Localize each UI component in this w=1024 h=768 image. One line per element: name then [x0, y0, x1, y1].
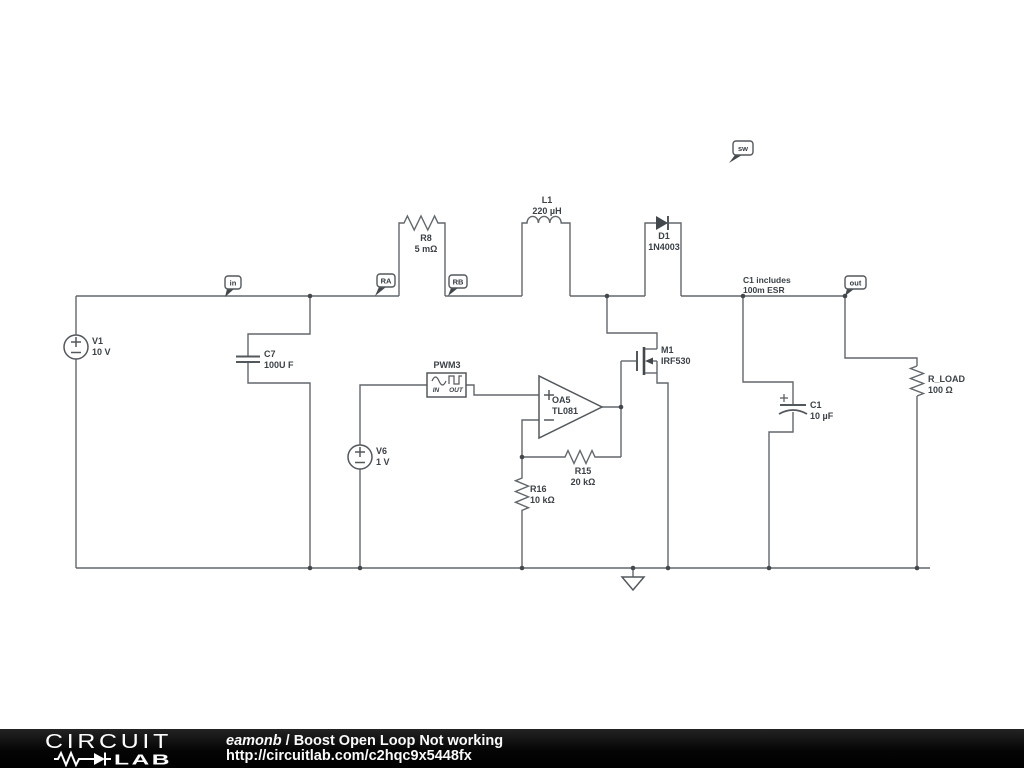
r8-value: 5 mΩ	[415, 244, 438, 254]
component-r8: R8 5 mΩ	[399, 216, 445, 296]
wire-c1-bottom	[769, 412, 793, 568]
component-v6: V6 1 V	[348, 445, 390, 469]
circuit-title: Boost Open Loop Not working	[294, 733, 503, 749]
component-d1: D1 1N4003	[645, 216, 681, 296]
title-separator: /	[286, 733, 290, 749]
r-load-name: R_LOAD	[928, 374, 966, 384]
wire-pwm-to-opamp	[466, 385, 539, 395]
junction-dot	[915, 566, 920, 571]
net-flag-out: out	[845, 276, 866, 296]
wire-c7-bottom	[248, 362, 310, 568]
flag-label: sw	[738, 144, 748, 153]
r-load-value: 100 Ω	[928, 385, 953, 395]
wire-v6-top	[360, 385, 427, 445]
junction-dot	[666, 566, 671, 571]
logo-diode-bar	[105, 752, 111, 765]
circuitlab-logo[interactable]: CIRCUIT LAB	[38, 731, 188, 767]
plus-mark	[780, 394, 788, 402]
wire-c1-top	[743, 296, 793, 405]
c1-name: C1	[810, 400, 822, 410]
logo-circuit-text: CIRCUIT	[45, 731, 172, 753]
mosfet-arrow-icon	[645, 358, 653, 365]
v1-name: V1	[92, 336, 103, 346]
junction-dot	[767, 566, 772, 571]
net-flag-sw: sw	[729, 141, 753, 163]
c7-name: C7	[264, 349, 276, 359]
capacitor-icon	[236, 357, 260, 363]
junction-dots	[308, 294, 920, 571]
component-oa5: OA5 TL081	[539, 376, 602, 438]
net-flags: in RA RB sw out	[225, 141, 866, 297]
flag-tail	[729, 155, 742, 163]
junction-dot	[605, 294, 610, 299]
component-pwm3: IN OUT PWM3	[427, 360, 466, 397]
v6-value: 1 V	[376, 457, 390, 467]
component-l1: L1 220 µH	[522, 195, 570, 296]
oa5-value: TL081	[552, 406, 578, 416]
resistor-icon	[399, 216, 445, 296]
component-v1: V1 10 V	[64, 335, 111, 359]
d1-name: D1	[658, 231, 670, 241]
net-flag-in: in	[225, 276, 241, 297]
component-c1: C1 10 µF	[779, 394, 834, 421]
wires	[76, 296, 930, 568]
junction-dot	[631, 566, 636, 571]
junction-dot	[358, 566, 363, 571]
junction-dot	[843, 294, 848, 299]
logo-resistor-icon	[54, 753, 94, 765]
junction-dot	[308, 294, 313, 299]
ground-symbol	[622, 568, 644, 590]
pwm3-out-label: OUT	[449, 387, 464, 394]
component-c7: C7 100U F	[236, 349, 294, 370]
l1-name: L1	[542, 195, 553, 205]
d1-value: 1N4003	[648, 242, 680, 252]
c1-note-line1: C1 includes	[743, 275, 791, 285]
c1-note-line2: 100m ESR	[743, 285, 785, 295]
resistor-icon	[522, 451, 621, 464]
flag-label: RB	[453, 278, 464, 287]
footer-bar: CIRCUIT LAB eamonb / Boost Open Loop Not…	[0, 729, 1024, 768]
wire-source	[657, 361, 668, 568]
l1-value: 220 µH	[532, 206, 561, 216]
oa5-name: OA5	[552, 395, 571, 405]
r8-name: R8	[420, 233, 432, 243]
inductor-icon	[522, 216, 570, 296]
wire-drain	[607, 296, 657, 349]
flag-label: out	[850, 279, 862, 288]
component-r-load: R_LOAD 100 Ω	[911, 366, 966, 396]
r15-value: 20 kΩ	[571, 477, 596, 487]
ground-icon	[622, 577, 644, 590]
r16-value: 10 kΩ	[530, 495, 555, 505]
logo-diode-icon	[94, 753, 105, 765]
flag-tail	[375, 287, 386, 296]
junction-dot	[741, 294, 746, 299]
v6-name: V6	[376, 446, 387, 456]
net-flag-ra: RA	[375, 274, 395, 296]
circuit-url[interactable]: http://circuitlab.com/c2hqc9x5448fx	[226, 749, 503, 764]
junction-dot	[619, 405, 624, 410]
r16-name: R16	[530, 484, 547, 494]
r15-name: R15	[575, 466, 592, 476]
wire-out-to-rload	[845, 296, 917, 366]
component-m1: M1 IRF530	[637, 345, 691, 375]
junction-dot	[520, 455, 525, 460]
wire-c7-top	[248, 296, 310, 356]
m1-value: IRF530	[661, 356, 691, 366]
v1-value: 10 V	[92, 347, 111, 357]
junction-dot	[308, 566, 313, 571]
author-name: eamonb	[226, 733, 282, 749]
junction-dot	[520, 566, 525, 571]
flag-tail	[448, 288, 458, 296]
c7-value: 100U F	[264, 360, 294, 370]
component-r16: R16 10 kΩ	[516, 457, 555, 568]
wire-opamp-minus	[522, 420, 539, 457]
schematic-area: V1 10 V C7 100U F R8 5 mΩ L1 220 µH D1 1…	[0, 0, 1024, 729]
footer-meta: eamonb / Boost Open Loop Not working htt…	[226, 734, 503, 764]
resistor-icon	[516, 457, 529, 568]
component-r15: R15 20 kΩ	[522, 451, 621, 488]
c1-esr-note: C1 includes 100m ESR	[743, 275, 791, 295]
pwm3-name: PWM3	[434, 360, 461, 370]
flag-label: RA	[381, 277, 392, 286]
m1-name: M1	[661, 345, 674, 355]
circuit-title-line: eamonb / Boost Open Loop Not working	[226, 734, 503, 749]
logo-lab-text: LAB	[114, 751, 172, 767]
pwm3-in-label: IN	[433, 387, 440, 394]
c1-value: 10 µF	[810, 411, 834, 421]
diode-icon	[656, 216, 668, 230]
flag-label: in	[230, 279, 237, 288]
schematic-canvas: V1 10 V C7 100U F R8 5 mΩ L1 220 µH D1 1…	[0, 0, 1024, 729]
resistor-icon	[911, 366, 924, 396]
net-flag-rb: RB	[448, 275, 467, 296]
